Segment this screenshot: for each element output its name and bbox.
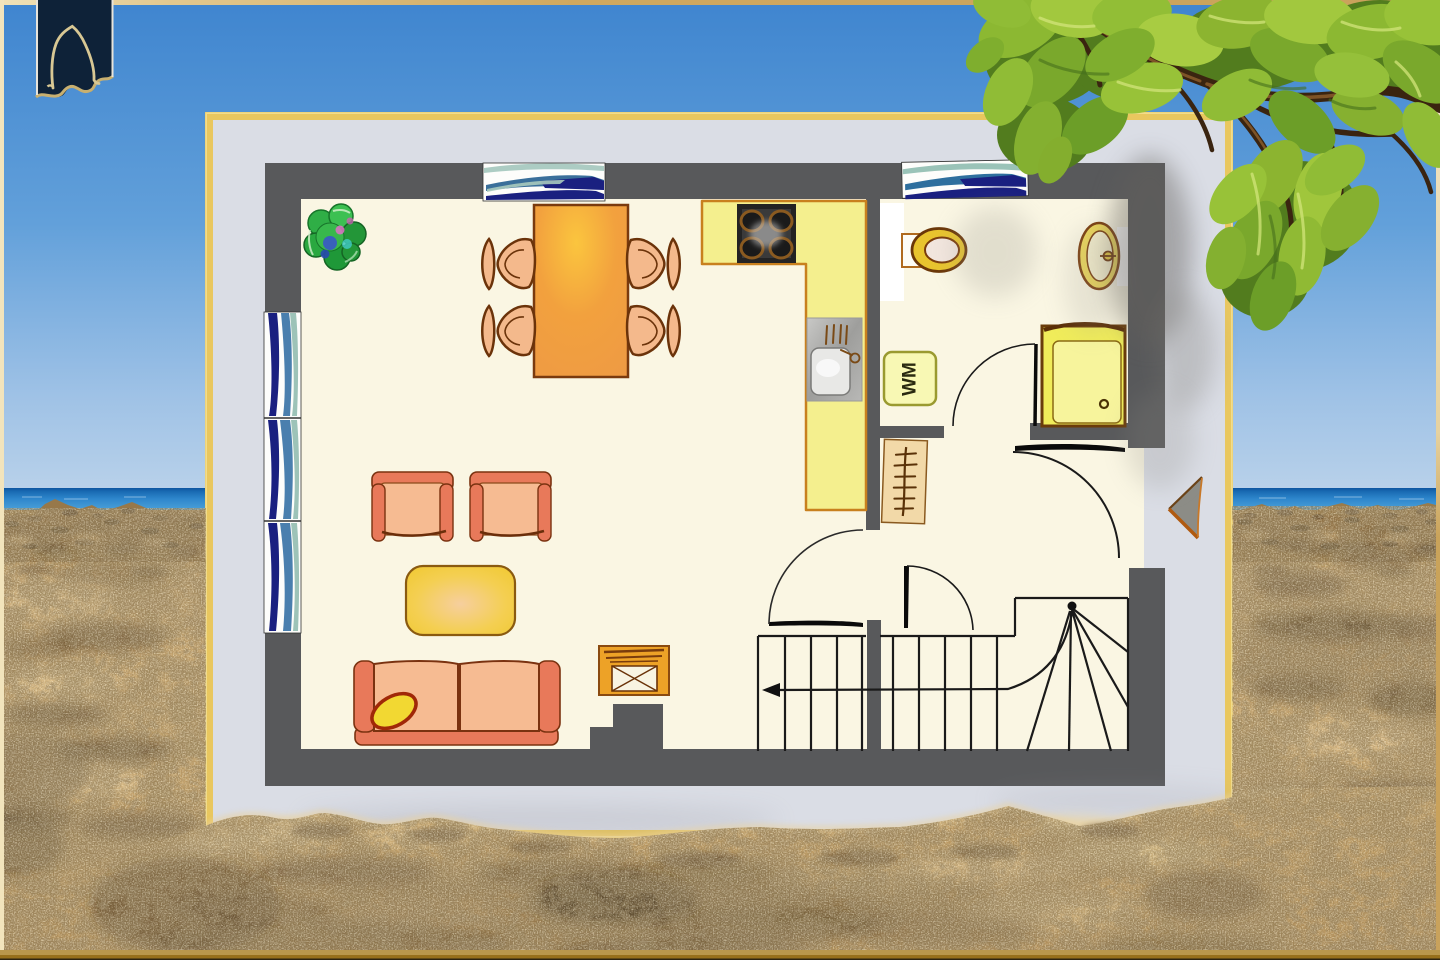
svg-text:WM: WM [900,362,921,396]
